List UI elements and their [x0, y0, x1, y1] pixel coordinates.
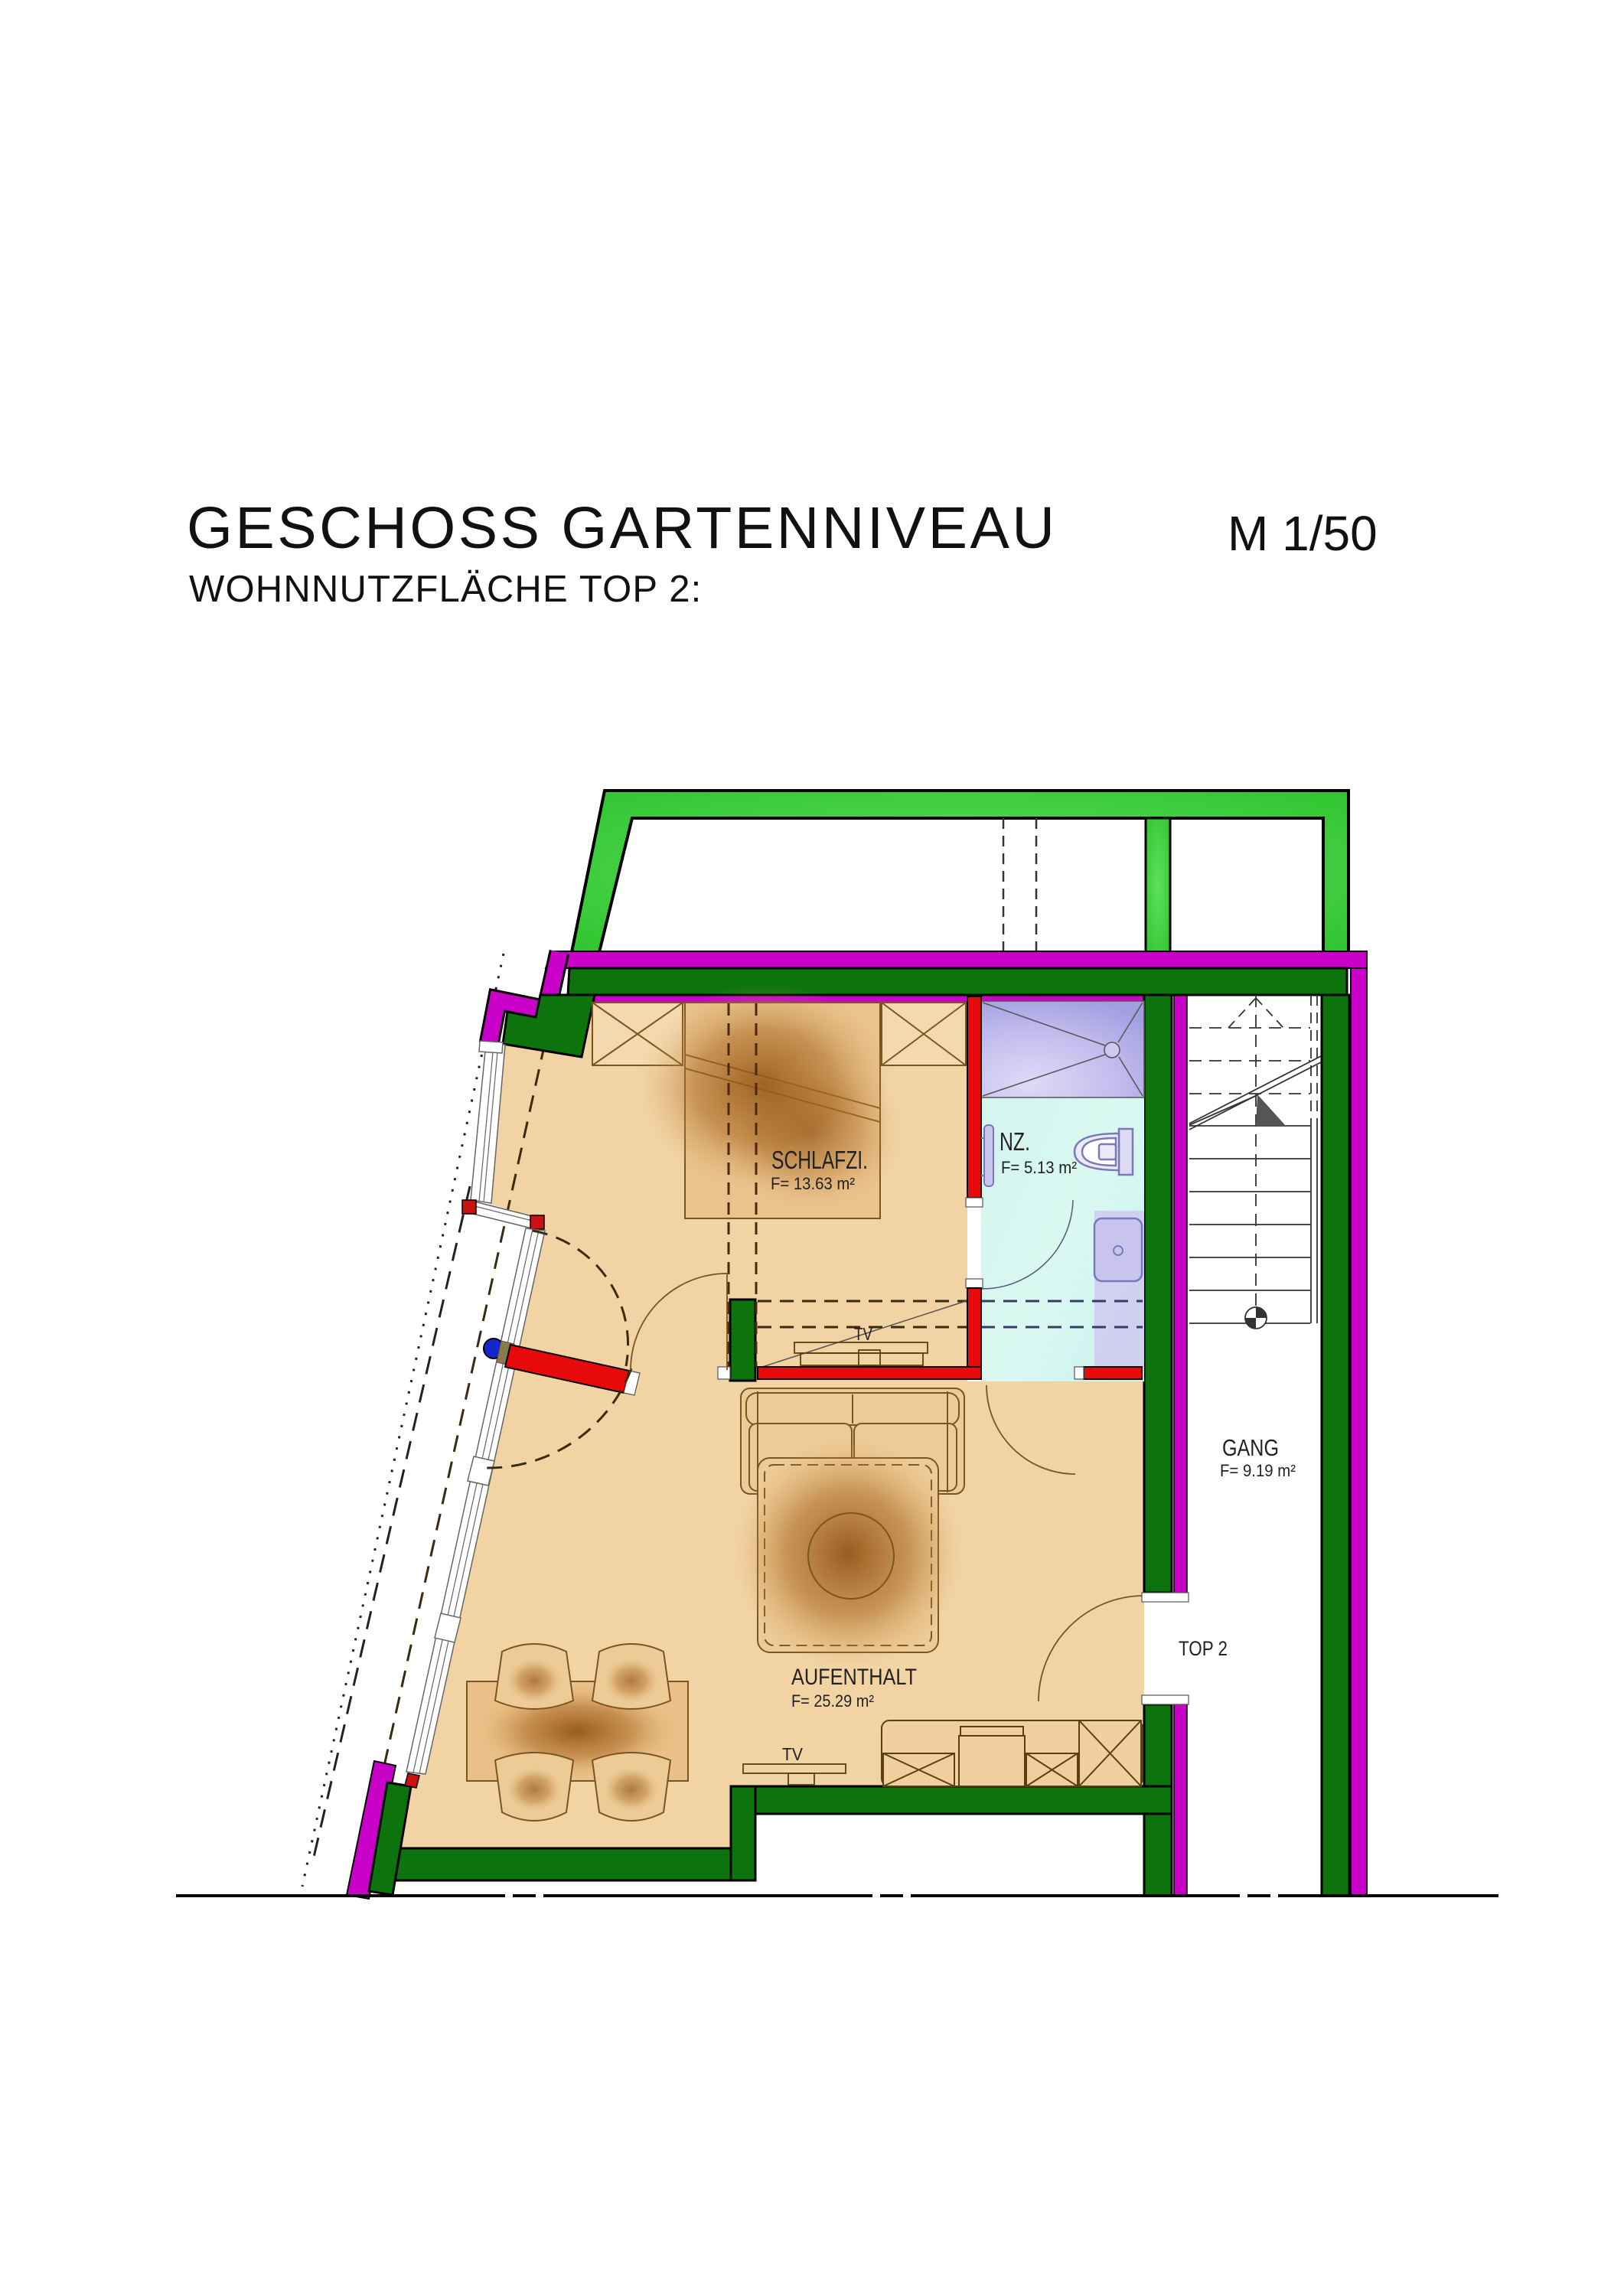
svg-text:F= 13.63 m²: F= 13.63 m² [771, 1174, 855, 1193]
svg-text:TV: TV [854, 1324, 873, 1344]
svg-text:GESCHOSS GARTENNIVEAU: GESCHOSS GARTENNIVEAU [187, 495, 1057, 561]
svg-text:AUFENTHALT: AUFENTHALT [791, 1665, 917, 1690]
svg-text:NZ.: NZ. [1000, 1127, 1030, 1156]
svg-text:M 1/50: M 1/50 [1228, 506, 1378, 561]
svg-text:F= 25.29 m²: F= 25.29 m² [791, 1691, 874, 1711]
svg-text:GANG: GANG [1222, 1434, 1279, 1461]
svg-text:SCHLAFZI.: SCHLAFZI. [771, 1146, 868, 1174]
svg-text:TV: TV [782, 1744, 804, 1764]
svg-text:F= 5.13 m²: F= 5.13 m² [1001, 1158, 1077, 1177]
svg-text:F= 9.19 m²: F= 9.19 m² [1220, 1461, 1296, 1480]
svg-text:TOP 2: TOP 2 [1179, 1637, 1228, 1660]
svg-text:WOHNNUTZFLÄCHE TOP 2:: WOHNNUTZFLÄCHE TOP 2: [189, 569, 702, 610]
